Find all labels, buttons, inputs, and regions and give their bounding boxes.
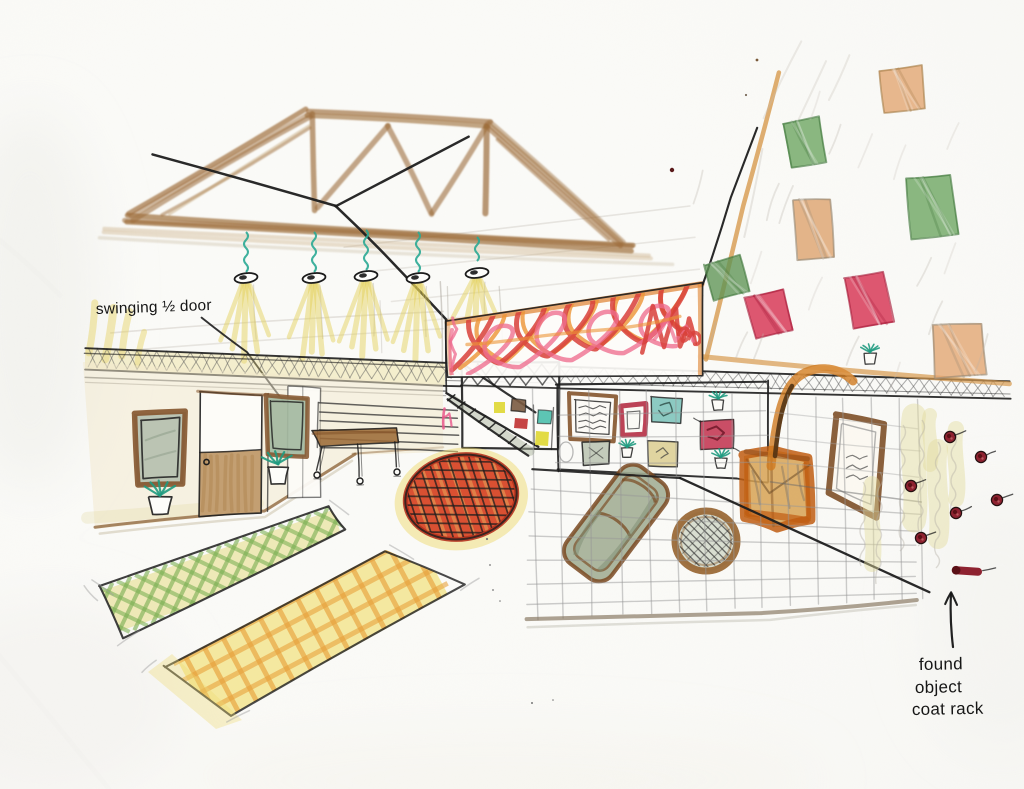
svg-text:found: found: [919, 654, 963, 674]
svg-text:coat rack: coat rack: [912, 699, 984, 719]
svg-text:object: object: [915, 677, 962, 697]
